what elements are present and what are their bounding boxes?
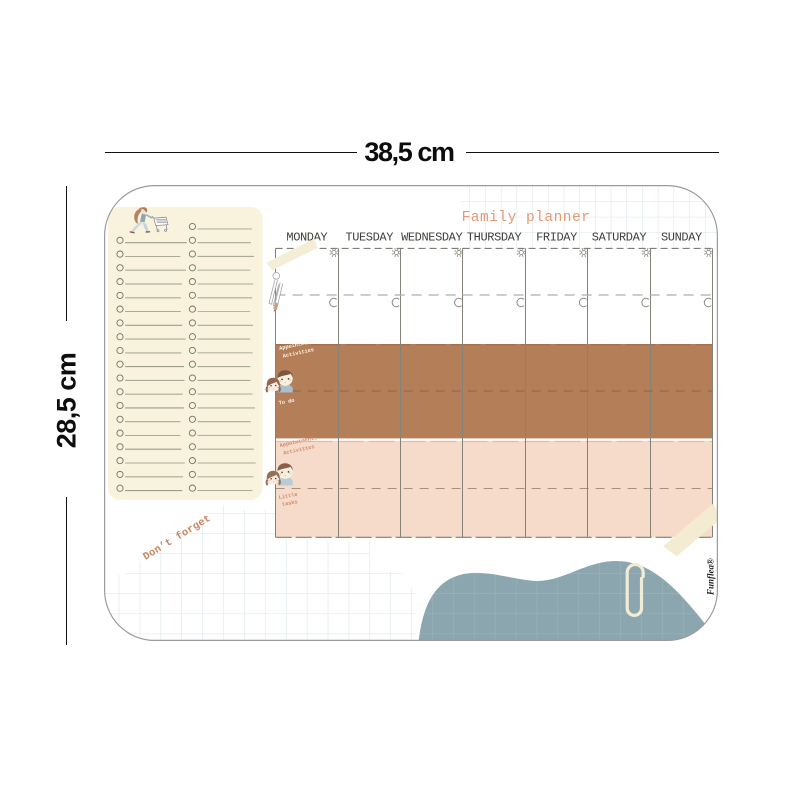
svg-text:THURSDAY: THURSDAY [467, 231, 522, 245]
svg-text:SATURDAY: SATURDAY [592, 231, 647, 245]
svg-text:Funflea®: Funflea® [706, 558, 716, 596]
svg-text:WEDNESDAY: WEDNESDAY [401, 231, 462, 245]
svg-text:SUNDAY: SUNDAY [661, 231, 702, 245]
svg-text:MONDAY: MONDAY [286, 231, 327, 245]
svg-text:TUESDAY: TUESDAY [345, 231, 393, 245]
svg-text:Family planner: Family planner [462, 210, 591, 226]
svg-text:FRIDAY: FRIDAY [536, 231, 577, 245]
